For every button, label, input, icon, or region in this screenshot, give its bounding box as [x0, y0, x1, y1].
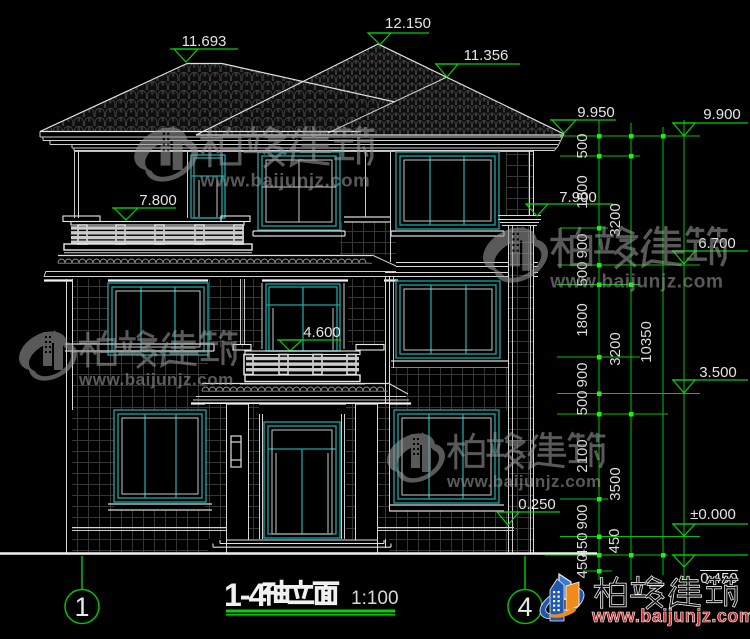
svg-text:1800: 1800 — [574, 303, 591, 336]
svg-text:4: 4 — [517, 592, 532, 622]
svg-text:7.800: 7.800 — [139, 192, 177, 209]
svg-text:900: 900 — [574, 504, 591, 529]
svg-text:900: 900 — [574, 362, 591, 387]
svg-text:±0.000: ±0.000 — [690, 506, 736, 523]
svg-text:450: 450 — [574, 553, 591, 578]
svg-text:1: 1 — [74, 592, 89, 622]
svg-text:www.baijunjz.com: www.baijunjz.com — [591, 606, 750, 626]
svg-text:12.150: 12.150 — [385, 15, 431, 32]
svg-text:9.900: 9.900 — [703, 106, 741, 123]
svg-text:3500: 3500 — [607, 467, 624, 500]
svg-text:1:100: 1:100 — [351, 588, 399, 609]
svg-text:500: 500 — [574, 133, 591, 158]
svg-text:10350: 10350 — [638, 321, 655, 363]
svg-text:3200: 3200 — [607, 203, 624, 236]
svg-text:11.693: 11.693 — [182, 33, 227, 50]
svg-text:1-4: 1-4 — [224, 577, 266, 613]
svg-text:1800: 1800 — [574, 175, 591, 208]
svg-text:4.600: 4.600 — [303, 324, 341, 341]
svg-text:450: 450 — [606, 528, 623, 553]
svg-text:3.500: 3.500 — [699, 364, 737, 381]
svg-text:500: 500 — [574, 390, 591, 415]
svg-text:0.250: 0.250 — [518, 496, 556, 513]
svg-text:3200: 3200 — [607, 332, 624, 365]
svg-text:11.356: 11.356 — [464, 47, 509, 64]
svg-text:9.950: 9.950 — [577, 104, 615, 121]
